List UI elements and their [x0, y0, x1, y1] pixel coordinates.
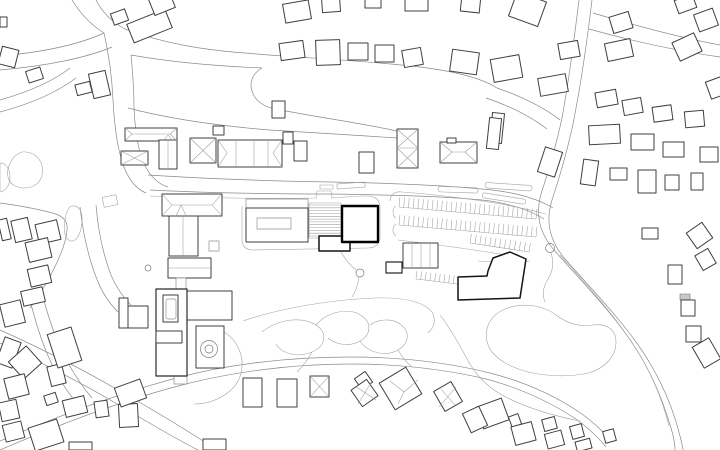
buildings-shape [375, 45, 394, 62]
paths-and-landscape-shape [352, 277, 359, 297]
buildings-shape [668, 265, 682, 284]
buildings-shape [11, 217, 33, 242]
paths-and-landscape-shape [262, 320, 324, 355]
buildings-shape [486, 117, 501, 149]
buildings-shape [604, 38, 633, 61]
buildings-shape [69, 442, 92, 450]
buildings-shape [403, 243, 438, 268]
buildings-shape [75, 81, 92, 95]
buildings-shape [294, 141, 307, 161]
buildings-shape [508, 0, 546, 27]
buildings-shape [257, 218, 291, 229]
buildings-shape [686, 222, 712, 248]
buildings-shape [681, 300, 695, 316]
parking-hatch-shape [470, 234, 530, 252]
buildings-shape [213, 126, 224, 135]
buildings-shape [243, 378, 262, 407]
roads-shape [539, 0, 675, 450]
buildings-shape [218, 140, 282, 167]
buildings-shape [595, 89, 618, 107]
buildings-shape [642, 228, 658, 239]
buildings-shape [47, 363, 66, 386]
buildings-shape [538, 74, 569, 97]
buildings-shape [575, 438, 592, 450]
paths-and-landscape-shape [482, 193, 526, 205]
buildings-shape [47, 327, 82, 368]
buildings-shape [128, 306, 148, 328]
buildings-shape [125, 128, 177, 141]
buildings-shape [695, 248, 716, 270]
buildings-shape [169, 216, 198, 256]
buildings-shape [694, 8, 719, 32]
buildings-shape [365, 0, 381, 8]
buildings-shape [246, 199, 308, 208]
buildings-shape [397, 129, 418, 168]
buildings-shape [638, 170, 656, 193]
buildings-shape [283, 0, 312, 23]
buildings-shape [610, 168, 627, 180]
paths-and-landscape-shape [320, 185, 333, 189]
buildings-shape [0, 17, 7, 27]
paths-and-landscape-shape [393, 206, 396, 218]
site-plan-page [0, 0, 720, 450]
buildings-shape [622, 97, 643, 115]
buildings-shape [203, 439, 226, 450]
buildings-shape [127, 9, 173, 43]
buildings-shape [700, 147, 718, 162]
buildings-shape [684, 110, 704, 128]
buildings-shape [25, 238, 52, 263]
buildings-shape [348, 43, 368, 60]
buildings-shape [450, 49, 480, 75]
site-circles-shape [356, 269, 364, 277]
paths-and-landscape-shape [309, 203, 341, 238]
buildings-shape [490, 55, 523, 83]
buildings-shape [570, 424, 585, 440]
buildings-shape [0, 46, 19, 68]
buildings-shape [94, 400, 109, 418]
buildings-shape [705, 77, 720, 99]
campus-bold-shape [156, 331, 182, 343]
paths-and-landscape-shape [543, 253, 552, 302]
campus-bold-shape [386, 262, 402, 273]
buildings-shape [359, 152, 374, 173]
parking-hatch-shape [399, 197, 537, 219]
paths-and-landscape-shape [393, 224, 396, 236]
buildings-shape [21, 287, 46, 307]
buildings-shape [62, 396, 87, 418]
roads-shape [72, 0, 104, 33]
buildings-shape [26, 67, 44, 83]
paths-and-landscape-shape [102, 195, 118, 208]
buildings-shape [2, 421, 25, 442]
buildings-shape [119, 298, 128, 328]
roads-shape [549, 0, 683, 450]
campus-bold-shape [166, 299, 176, 319]
buildings-shape [4, 374, 29, 399]
buildings-shape [316, 40, 341, 66]
buildings-shape [686, 326, 701, 342]
roads-shape [131, 55, 262, 68]
buildings-shape [542, 417, 558, 432]
buildings-shape [631, 134, 654, 150]
buildings-shape [0, 399, 20, 421]
buildings-shape [589, 124, 621, 145]
buildings-shape [603, 429, 617, 443]
buildings-shape [405, 0, 428, 11]
buildings-shape [379, 367, 422, 410]
roads-shape [251, 68, 397, 131]
parking-hatch-shape [309, 205, 341, 236]
paths-and-landscape-shape [337, 182, 365, 189]
buildings-shape [680, 294, 690, 300]
paths-and-landscape-shape [8, 152, 43, 188]
paths-and-landscape-shape [243, 298, 434, 333]
buildings-shape [537, 147, 562, 177]
buildings-shape [674, 0, 697, 14]
paths-and-landscape-shape [440, 315, 580, 421]
site-plan-drawing [0, 0, 720, 450]
buildings-shape [652, 105, 673, 122]
buildings-shape [149, 0, 176, 16]
buildings-shape [665, 175, 679, 190]
paths-and-landscape-shape [341, 252, 356, 270]
buildings-shape [196, 326, 224, 368]
buildings-shape [114, 379, 146, 407]
paths-and-landscape-shape [560, 255, 669, 426]
buildings-shape [110, 9, 128, 25]
site-circles-shape [145, 265, 151, 271]
buildings-shape [27, 265, 52, 287]
buildings-shape [277, 379, 297, 407]
roads-shape [104, 33, 146, 193]
paths-and-landscape-shape [360, 320, 407, 353]
buildings-shape [0, 300, 25, 327]
buildings-shape [279, 40, 305, 60]
buildings-shape [176, 278, 186, 289]
campus-bold-shape [458, 252, 526, 300]
buildings-shape [609, 11, 633, 33]
buildings-shape [272, 101, 285, 118]
buildings-shape [88, 70, 110, 98]
buildings-shape [580, 159, 598, 186]
buildings-shape [321, 0, 340, 13]
roads-shape [96, 205, 131, 305]
roads-shape [125, 29, 497, 88]
buildings-shape [663, 142, 684, 157]
paths-and-landscape-shape [486, 305, 616, 376]
buildings-shape [402, 47, 424, 67]
buildings-shape [460, 0, 480, 13]
buildings-shape [691, 173, 703, 190]
buildings-shape [440, 142, 477, 163]
buildings-shape [0, 218, 11, 240]
roads-shape [80, 207, 118, 312]
buildings-shape [209, 241, 219, 251]
buildings-shape [447, 138, 456, 143]
paths-and-landscape-shape [64, 206, 82, 241]
parking-hatch-shape [399, 215, 537, 237]
buildings-shape [44, 392, 59, 405]
parking-hatch-shape [416, 271, 459, 284]
paths-and-landscape [0, 152, 669, 426]
buildings-shape [558, 40, 580, 59]
buildings-shape [283, 132, 293, 144]
buildings-shape [544, 430, 564, 449]
roads-shape [0, 78, 76, 112]
campus-bold-shape [342, 206, 378, 242]
buildings-shape [672, 33, 702, 61]
buildings-shape [28, 419, 64, 450]
